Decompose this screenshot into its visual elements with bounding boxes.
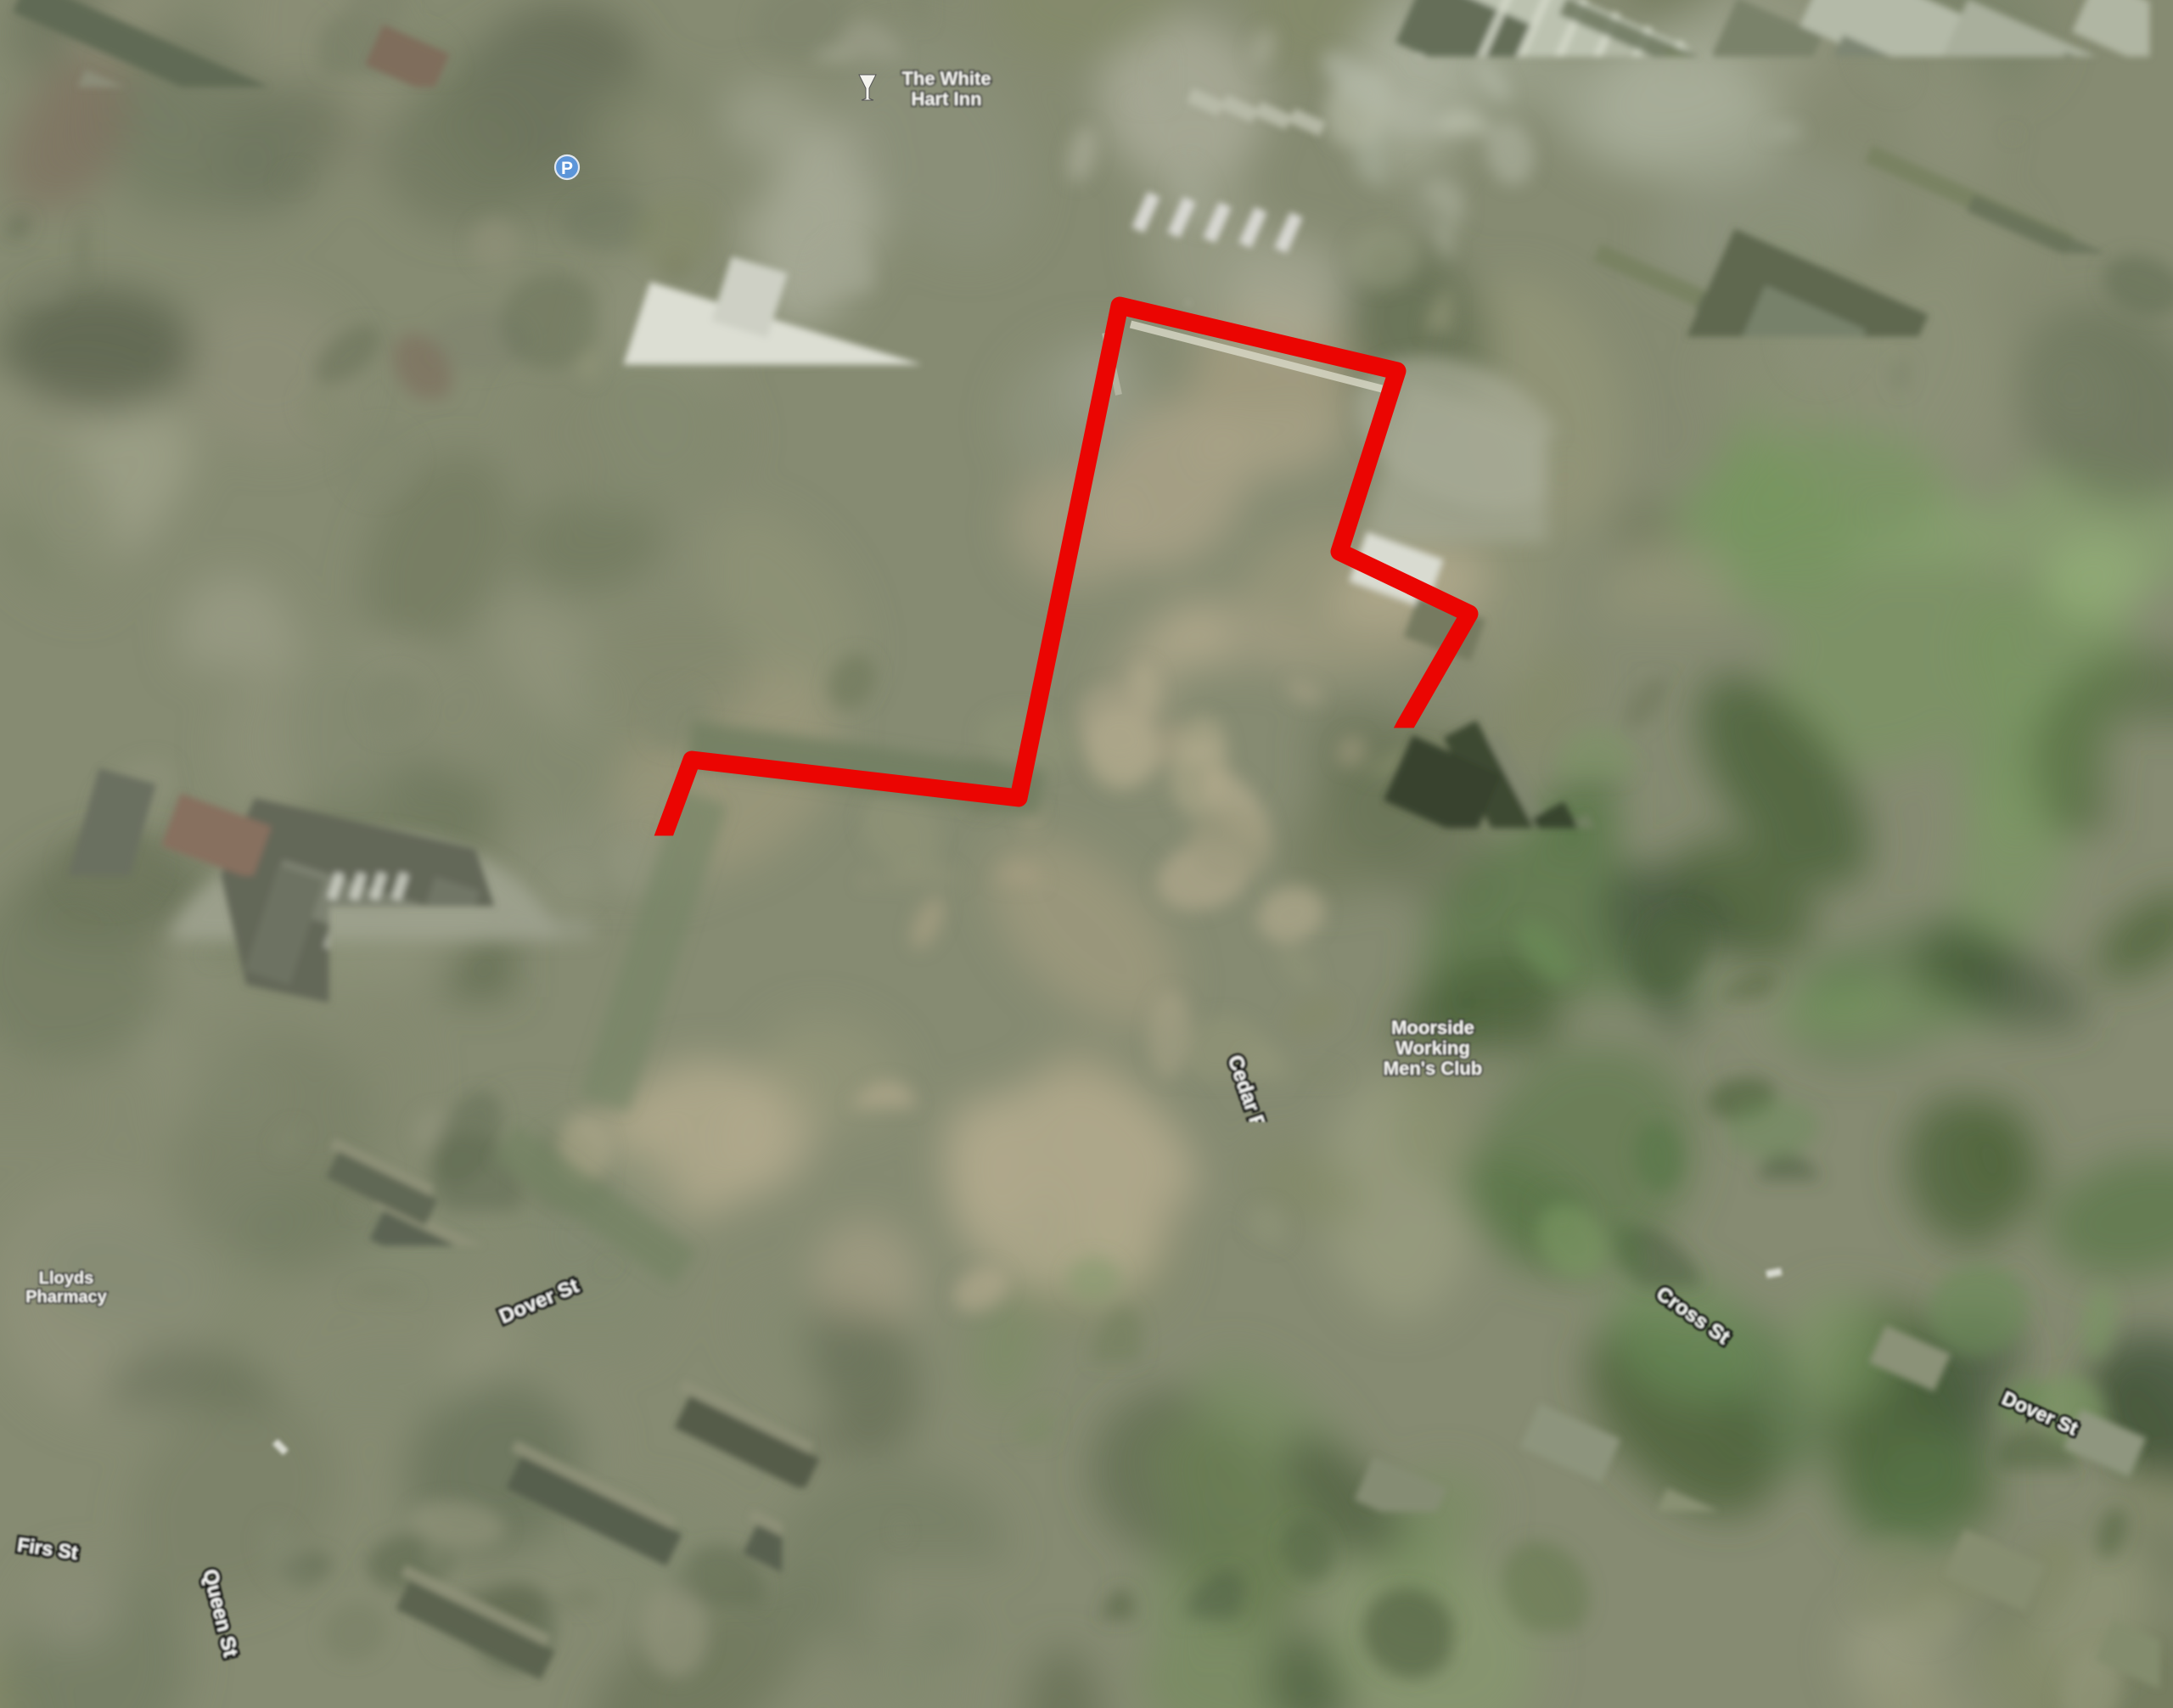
svg-text:MoorsideWorkingMen's Club: MoorsideWorkingMen's Club xyxy=(1384,1017,1482,1079)
svg-text:The WhiteHart Inn: The WhiteHart Inn xyxy=(901,68,991,110)
svg-text:MiddletonYouth Centre: MiddletonYouth Centre xyxy=(452,630,567,671)
svg-text:M: M xyxy=(1,1054,16,1074)
svg-text:P: P xyxy=(561,159,573,178)
